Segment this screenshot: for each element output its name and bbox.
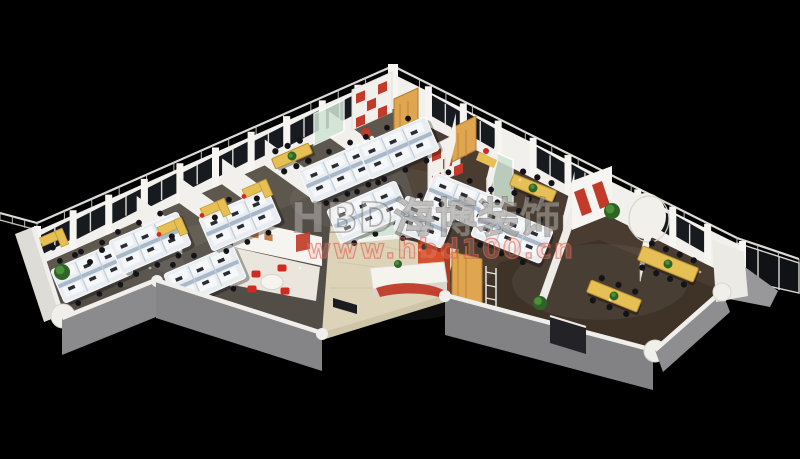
red-chair: [278, 265, 287, 272]
plant-highlight: [606, 205, 615, 214]
plant-highlight: [534, 297, 542, 305]
wall-cap-corner: [439, 290, 451, 302]
spot-light-dot: [699, 271, 702, 274]
red-chair: [252, 271, 261, 278]
red-chair: [281, 288, 290, 295]
left-window-wall-pillar: [248, 132, 255, 172]
wall-cap-corner: [316, 328, 328, 340]
spot-light-dot: [299, 267, 302, 270]
office-chair: [87, 259, 93, 265]
left-window-wall-pillar: [212, 148, 219, 188]
spot-light-dot: [179, 249, 182, 252]
plant-highlight: [56, 266, 65, 275]
spot-light-dot: [609, 299, 612, 302]
spot-light-dot: [519, 179, 522, 182]
office-chair: [99, 247, 105, 253]
right-window-wall-pillar: [669, 207, 676, 248]
office-floorplan-render: HBD海博装饰 www.hbd100.cn: [0, 0, 800, 459]
red-chair: [248, 286, 257, 293]
right-window-wall-pillar: [530, 138, 537, 179]
right-window-wall-pillar: [704, 224, 711, 265]
wall-cap-corner: [713, 283, 731, 301]
flower-vase: [483, 148, 489, 154]
spot-light-dot: [329, 181, 332, 184]
round-table: [261, 275, 283, 290]
left-window-wall-pillar: [283, 116, 290, 156]
spot-light-dot: [259, 214, 262, 217]
spot-light-dot: [149, 267, 152, 270]
watermark-url: www.hbd100.cn: [306, 234, 575, 265]
office-chair: [72, 252, 78, 258]
render-canvas: HBD海博装饰 www.hbd100.cn: [0, 0, 800, 459]
left-window-wall-pillar: [105, 195, 112, 235]
left-window-wall-pillar: [70, 210, 77, 250]
